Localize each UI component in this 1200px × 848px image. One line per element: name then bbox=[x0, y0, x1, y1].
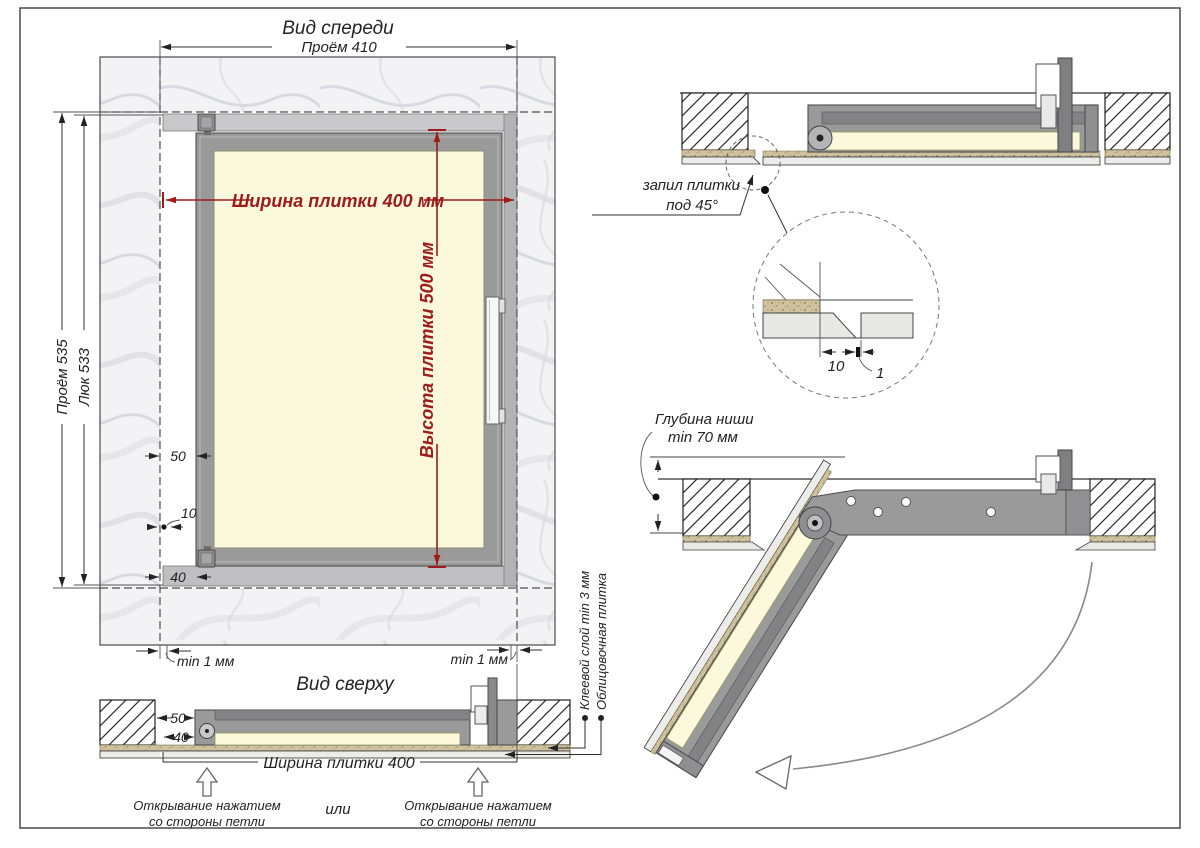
latch-open-section bbox=[1036, 450, 1072, 494]
label-glue-layer: Клеевой слой min 3 мм bbox=[577, 571, 592, 710]
ceiling-section-left bbox=[683, 479, 750, 536]
svg-text:Открывание нажатием: Открывание нажатием bbox=[133, 798, 281, 813]
svg-text:со стороны петли: со стороны петли bbox=[149, 814, 265, 829]
svg-text:40: 40 bbox=[170, 569, 186, 585]
frame-bottom-strip bbox=[163, 566, 517, 586]
frame-top-strip bbox=[163, 114, 517, 131]
detail-door-tile bbox=[861, 313, 913, 338]
wall-tile-cut-45 bbox=[682, 157, 760, 164]
door-closed-section bbox=[763, 58, 1100, 165]
svg-text:50: 50 bbox=[170, 710, 186, 726]
svg-text:40: 40 bbox=[173, 729, 189, 745]
drawing-sheet: Вид спереди bbox=[0, 0, 1200, 848]
svg-text:со стороны петли: со стороны петли bbox=[420, 814, 536, 829]
svg-text:запил плитки: запил плитки bbox=[642, 177, 741, 194]
open-view: Глубина ниши min 70 мм bbox=[641, 411, 1155, 789]
svg-text:под 45°: под 45° bbox=[666, 197, 718, 214]
svg-text:min 70 мм: min 70 мм bbox=[668, 429, 738, 446]
press-arrow-left-icon bbox=[197, 768, 217, 796]
svg-text:Люк 533: Люк 533 bbox=[76, 347, 93, 406]
svg-text:Проём 410: Проём 410 bbox=[301, 39, 377, 56]
open-hint-right: Открывание нажатием со стороны петли bbox=[404, 798, 552, 829]
svg-text:Проём 535: Проём 535 bbox=[54, 339, 71, 415]
label-facing-tile: Облицовочная плитка bbox=[594, 573, 609, 710]
wall-section-left bbox=[100, 700, 155, 745]
svg-text:Открывание нажатием: Открывание нажатием bbox=[404, 798, 552, 813]
hinge-arm bbox=[799, 490, 1090, 539]
svg-text:Глубина ниши: Глубина ниши bbox=[655, 411, 754, 428]
latch-section bbox=[471, 678, 517, 745]
technical-drawing: Вид спереди bbox=[0, 0, 1200, 848]
or-label: или bbox=[325, 801, 351, 818]
detail-glue-layer bbox=[763, 300, 820, 313]
front-view: Вид спереди bbox=[53, 18, 555, 669]
swing-arrow-icon bbox=[756, 756, 791, 789]
gap-min-right: min 1 мм bbox=[451, 645, 542, 667]
ceiling-section-right bbox=[1105, 93, 1170, 150]
cut-45-label: запил плитки под 45° bbox=[592, 175, 794, 247]
open-hint-left: Открывание нажатием со стороны петли bbox=[133, 798, 281, 829]
wall-section-right bbox=[517, 700, 570, 745]
front-view-title: Вид спереди bbox=[282, 18, 394, 39]
ceiling-section-right bbox=[1090, 479, 1155, 536]
svg-text:10: 10 bbox=[181, 505, 197, 521]
glue-layer-strip bbox=[100, 745, 570, 751]
svg-text:1: 1 bbox=[876, 365, 884, 382]
section-closed-view: запил плитки под 45° bbox=[592, 58, 1170, 247]
svg-text:Ширина плитки 400: Ширина плитки 400 bbox=[263, 755, 414, 772]
frame-right-strip bbox=[504, 114, 517, 586]
svg-text:Ширина плитки 400 мм: Ширина плитки 400 мм bbox=[232, 191, 444, 211]
dim-top-50: 50 bbox=[157, 710, 194, 726]
svg-text:min 1 мм: min 1 мм bbox=[177, 653, 235, 669]
dim-top-40: 40 bbox=[164, 729, 194, 745]
svg-text:Высота плитки 500 мм: Высота плитки 500 мм bbox=[417, 242, 437, 458]
top-view-title: Вид сверху bbox=[296, 674, 395, 695]
detail-view: 10 1 bbox=[753, 212, 939, 398]
ceiling-section-left bbox=[682, 93, 748, 150]
svg-text:10: 10 bbox=[828, 358, 845, 375]
press-arrow-right-icon bbox=[468, 768, 488, 796]
svg-text:min 1 мм: min 1 мм bbox=[451, 651, 509, 667]
wall-tile-shelf-left bbox=[683, 542, 764, 550]
gap-min-left: min 1 мм bbox=[136, 645, 235, 669]
wall-tile-shelf-right bbox=[1076, 542, 1155, 550]
svg-text:50: 50 bbox=[170, 448, 186, 464]
